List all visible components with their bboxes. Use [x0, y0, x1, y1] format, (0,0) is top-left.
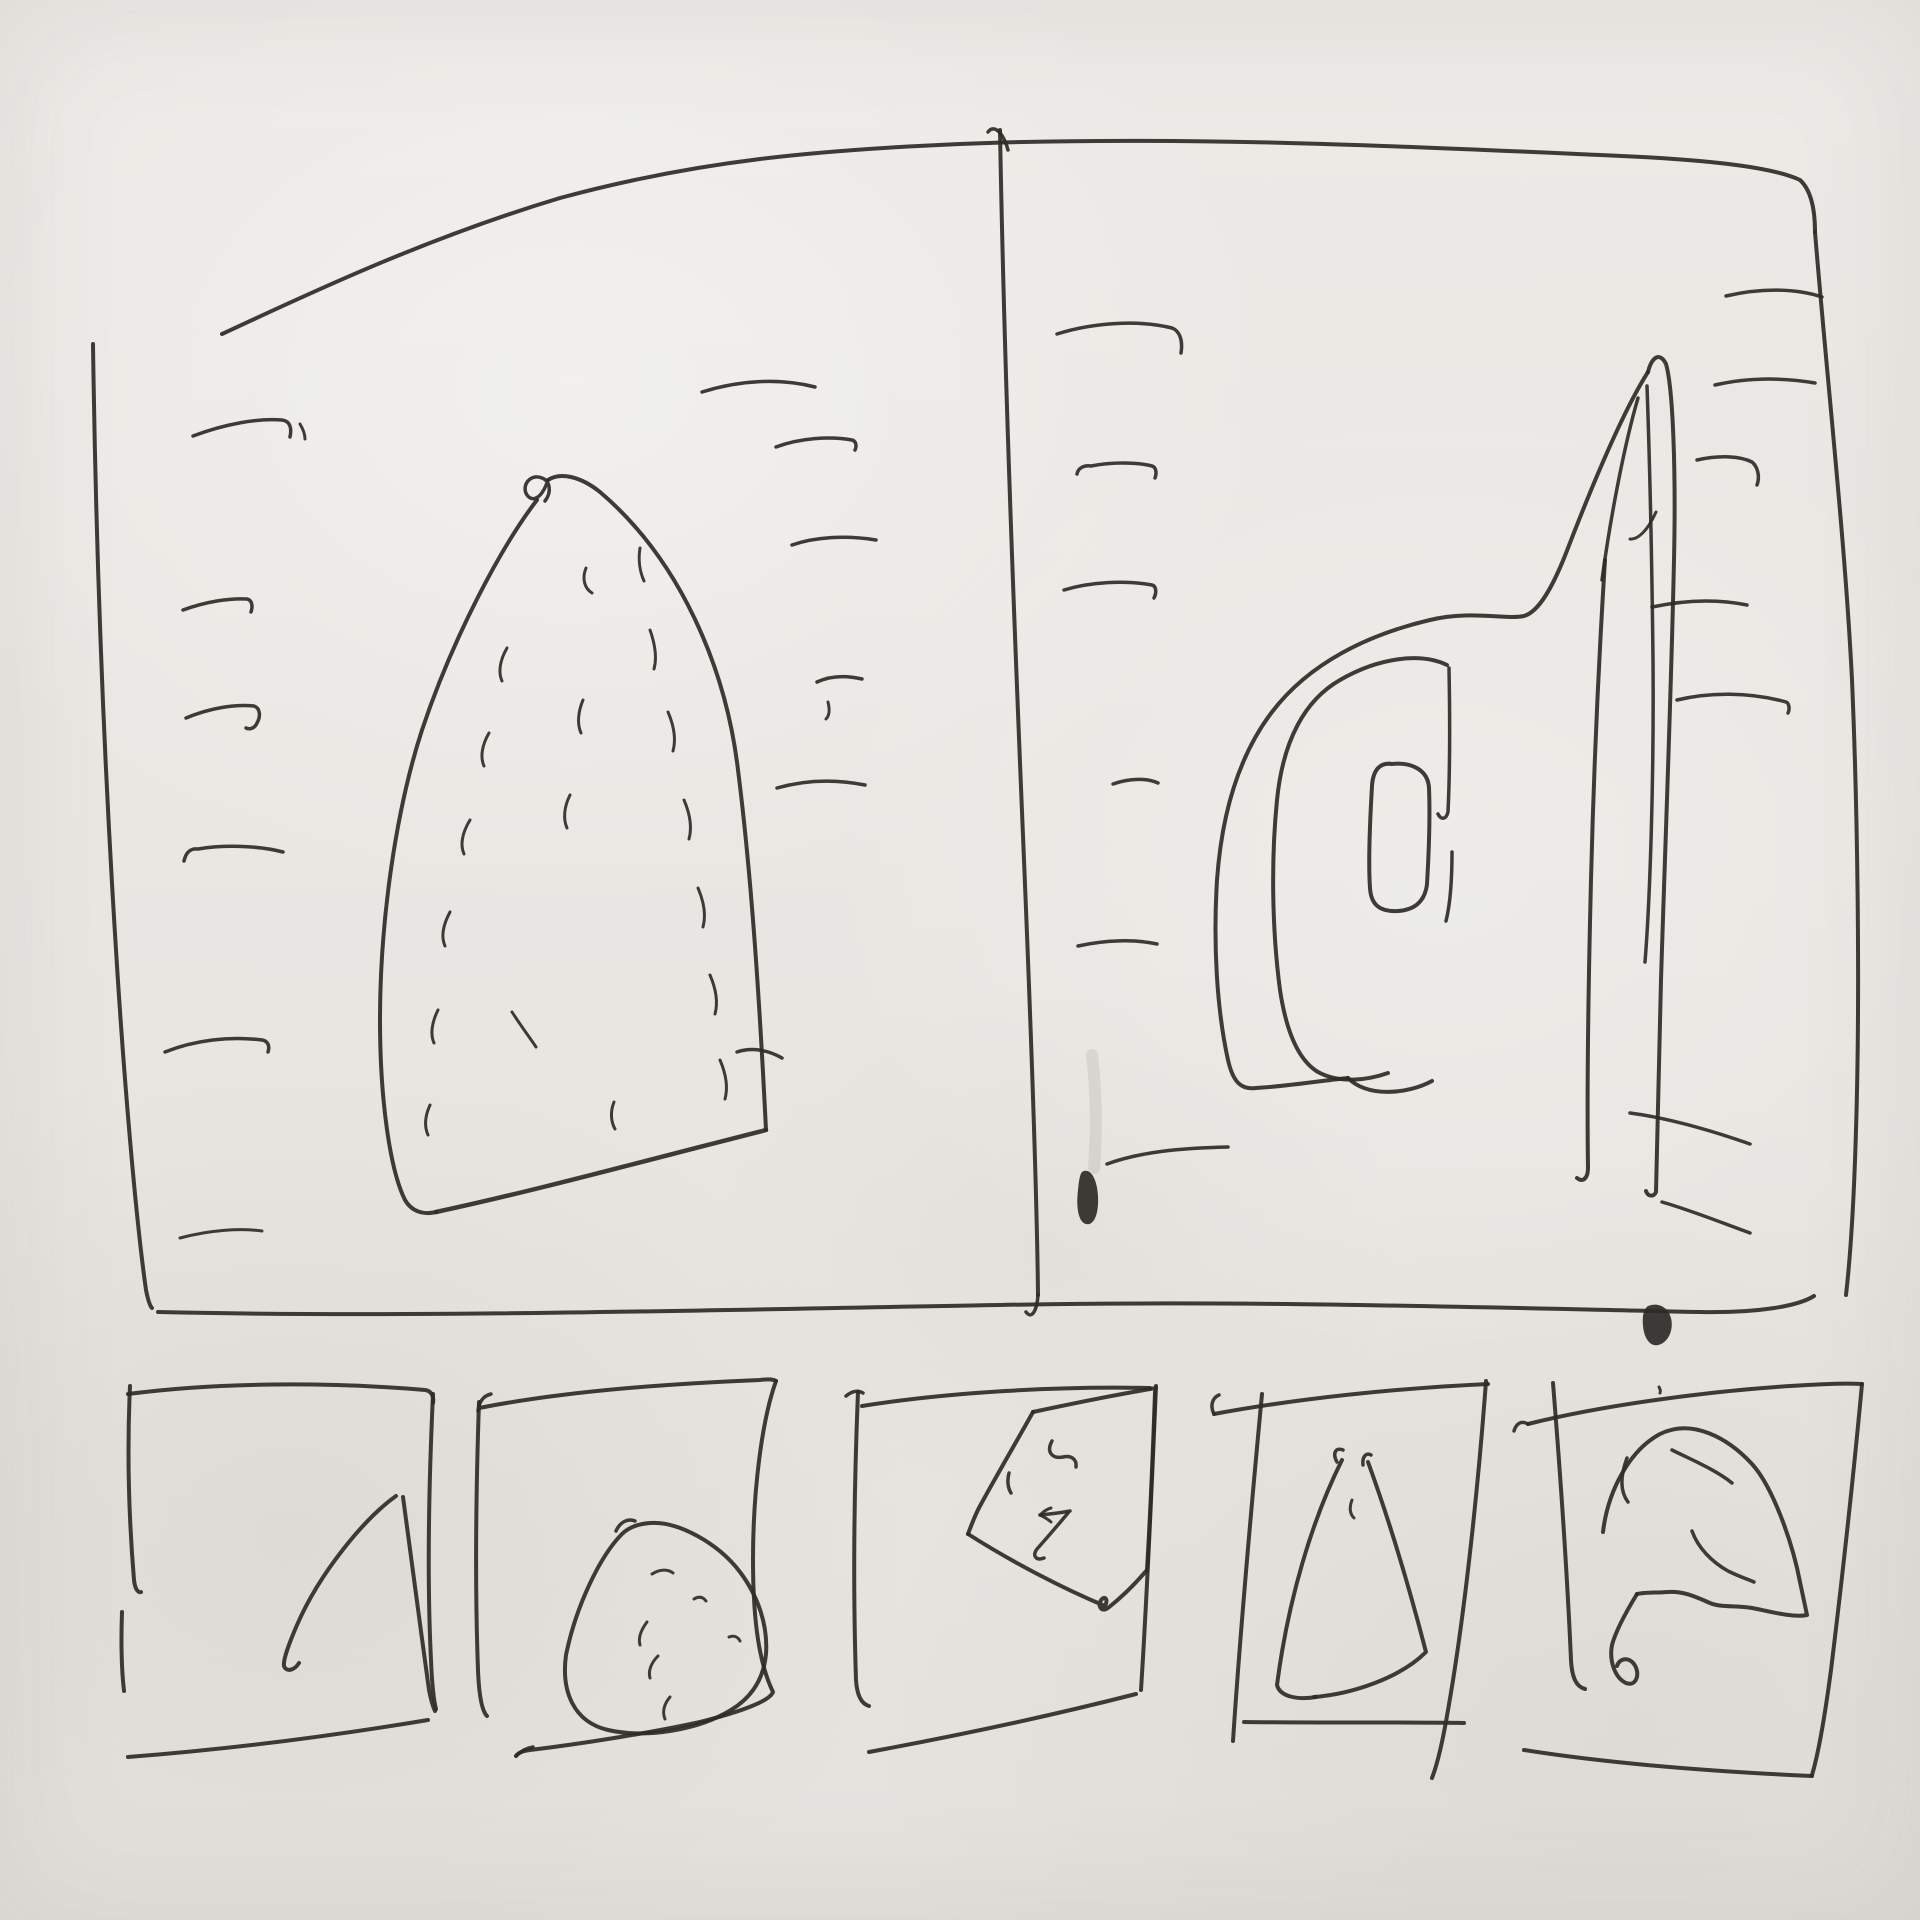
thumb1-bottom-edge	[128, 1720, 428, 1757]
right-panel-tick-2	[1077, 463, 1156, 478]
thumb1-right-edge	[429, 1394, 436, 1709]
sail-hatch-8	[426, 1105, 430, 1135]
center-tick-6	[737, 1050, 782, 1058]
thumb3-left-top-hook	[846, 1391, 863, 1396]
right-edge-tick-2	[1715, 379, 1815, 385]
sail-shape-bottom-edge	[436, 1130, 766, 1212]
thumb2-pillow-hatch-3	[639, 1622, 647, 1645]
sail-hatch-6	[443, 912, 450, 946]
thumb1-left-edge	[129, 1386, 141, 1592]
sail-hatch-7	[432, 1010, 438, 1043]
thumb3-mark-dash	[1008, 1473, 1011, 1493]
left-margin-tick-5	[165, 1039, 269, 1053]
left-margin-tick-1-apostrophe	[300, 424, 305, 439]
main-frame-right-edge	[1815, 232, 1858, 1295]
sail-hatch-18	[611, 1102, 615, 1129]
thumb4-top-edge	[1214, 1384, 1488, 1414]
thumb4-right-edge	[1432, 1381, 1486, 1778]
steeple-strip-left-line	[1577, 560, 1605, 1180]
thumb2-pillow-hatch-2	[694, 1597, 706, 1601]
thumb5-right-edge	[1812, 1384, 1862, 1775]
thumb3-diamond-bottom-edge	[968, 1534, 1147, 1610]
center-tick-4	[817, 677, 862, 682]
left-margin-tick-3	[186, 706, 259, 729]
sail-hatch-2	[639, 548, 644, 581]
thumb1-top-edge	[128, 1384, 433, 1403]
sail-hatch-12	[698, 888, 704, 927]
thumb3-bottom-edge	[869, 1694, 1136, 1752]
ink-strokes-group	[93, 129, 1862, 1778]
sail-hatch-1	[584, 568, 592, 593]
ear-shape-inner-pillar	[1369, 764, 1429, 911]
center-tick-3	[792, 537, 876, 545]
thumb4-bottom-edge	[1244, 1722, 1464, 1723]
thumb5-left-edge	[1553, 1383, 1585, 1689]
thumb4-top-left-hook	[1212, 1395, 1219, 1414]
thumb5-top-left-hook	[1514, 1422, 1528, 1431]
sail-hatch-3	[500, 648, 507, 681]
right-panel-tick-5	[1078, 941, 1157, 946]
center-tick-1	[702, 381, 815, 392]
paper-sheet	[0, 0, 1920, 1920]
center-tick-5	[777, 781, 865, 788]
right-edge-tick-1	[1726, 290, 1822, 297]
thumb2-pillow-hatch-1	[652, 1570, 673, 1574]
ink-blob-divider	[1077, 1171, 1098, 1224]
right-edge-tick-3	[1697, 457, 1758, 485]
left-margin-tick-1	[193, 420, 291, 437]
sketch-canvas	[0, 0, 1920, 1920]
sail-hatch-9	[650, 630, 655, 669]
main-frame-left-edge	[93, 344, 152, 1308]
thumb2-top-edge	[479, 1379, 776, 1408]
left-margin-tick-2	[183, 599, 252, 612]
ear-shape-middle-curve	[1273, 658, 1447, 1079]
right-edge-tick-4	[1652, 601, 1747, 607]
ear-shape-inner-vertical	[1438, 668, 1450, 818]
thumb2-pillow-hatch-4	[729, 1636, 740, 1641]
main-frame-bottom-edge	[158, 1296, 1814, 1314]
right-panel-tick-6	[1107, 1147, 1228, 1164]
center-tick-4-apostrophe	[826, 702, 829, 719]
thumb3-mark-arrow-diagonal	[1035, 1513, 1068, 1559]
ink-smudge-streak	[1092, 1055, 1096, 1168]
sail-hatch-11	[684, 800, 690, 839]
thumb5-paper-speck	[1659, 1387, 1660, 1393]
left-margin-tick-6	[180, 1230, 262, 1238]
sail-hatch-15	[579, 700, 583, 733]
sail-hatch-14	[720, 1060, 726, 1099]
thumb1-sail-left	[284, 1496, 396, 1670]
thumb3-diamond-left-edge	[968, 1412, 1033, 1534]
thumb5-arch-leg-loop	[1611, 1594, 1637, 1684]
thumb4-left-edge	[1233, 1394, 1262, 1741]
sail-hatch-16	[565, 795, 570, 828]
sail-hatch-17	[512, 1012, 536, 1047]
panel-divider-line	[1000, 130, 1038, 1295]
thumb1-left-edge-lower	[121, 1612, 124, 1691]
sail-hatch-4	[482, 733, 489, 766]
thumb5-arch-inner-top-curve	[1672, 1450, 1732, 1483]
ear-shape-inner-vertical-2	[1446, 852, 1452, 921]
thumb3-diamond-top-edge	[1033, 1388, 1156, 1412]
thumb2-pillow-hatch-6	[664, 1697, 670, 1719]
thumb5-top-edge	[1528, 1384, 1862, 1424]
sail-apex-loop	[525, 477, 549, 501]
thumb4-triangle-left	[1277, 1460, 1342, 1698]
steeple-inner-right-line	[1645, 386, 1653, 962]
thumb5-arch-inner-s-curve	[1692, 1531, 1754, 1582]
sail-shape-right-edge	[548, 476, 766, 1130]
sail-shape-left-edge	[380, 500, 537, 1213]
thumb5-arch-outline	[1603, 1428, 1807, 1615]
thumb3-left-edge	[854, 1392, 869, 1706]
right-edge-tick-5	[1677, 694, 1789, 713]
center-tick-2	[776, 438, 856, 450]
main-frame-top-edge	[222, 141, 1815, 334]
thumb3-mark-s-hook	[1050, 1441, 1076, 1467]
thumb4-triangle-tick	[1350, 1500, 1354, 1518]
thumb2-pillow-hatch-5	[649, 1656, 658, 1678]
panel-divider-top-hook	[988, 129, 1008, 150]
right-panel-tick-1	[1057, 323, 1182, 353]
strip-cross-tick-lower	[1662, 1202, 1750, 1233]
right-panel-tick-4	[1113, 779, 1158, 784]
left-margin-tick-4	[184, 846, 283, 861]
thumb5-bottom-edge	[1524, 1750, 1812, 1776]
sail-hatch-13	[710, 975, 716, 1014]
thumb2-left-edge	[476, 1402, 487, 1716]
right-panel-tick-3	[1064, 582, 1156, 598]
sail-hatch-5	[462, 820, 470, 854]
strip-cross-tick-upper	[1630, 1113, 1750, 1144]
sail-hatch-10	[668, 712, 674, 751]
thumb4-triangle-right	[1314, 1462, 1426, 1697]
